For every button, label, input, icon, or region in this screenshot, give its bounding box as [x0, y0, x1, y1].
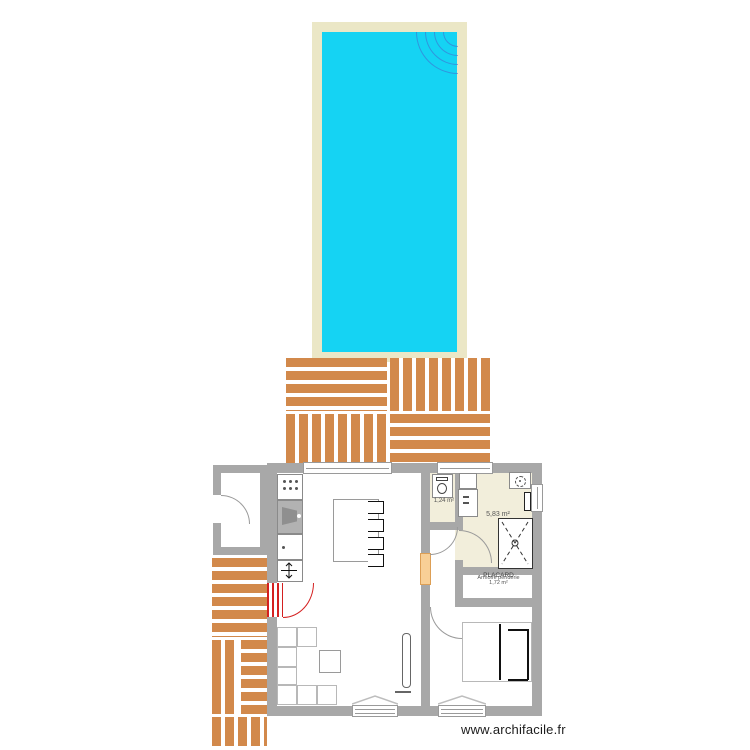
- kitchen-counter[interactable]: [277, 534, 303, 560]
- deck-tile[interactable]: [390, 414, 490, 466]
- wall-middle-vertical[interactable]: [421, 473, 430, 706]
- window[interactable]: [531, 484, 543, 512]
- chair[interactable]: [368, 501, 384, 514]
- chair[interactable]: [368, 537, 384, 550]
- wall-bottom[interactable]: [267, 706, 542, 716]
- deck-tile[interactable]: [212, 558, 267, 637]
- coffee-table[interactable]: [319, 650, 341, 673]
- wc-area-label: 1,24 m²: [427, 498, 461, 505]
- deck-tile[interactable]: [212, 717, 267, 746]
- sofa-module[interactable]: [277, 685, 297, 705]
- entry-door[interactable]: [267, 583, 283, 617]
- window[interactable]: [303, 462, 392, 474]
- toilet-icon: [436, 477, 448, 481]
- shower[interactable]: [498, 518, 533, 569]
- sink-bowl-icon: [282, 507, 297, 525]
- window[interactable]: [438, 705, 486, 717]
- window[interactable]: [352, 705, 398, 717]
- washing-machine[interactable]: [459, 473, 477, 489]
- bed-divider: [499, 624, 501, 680]
- window-chevron: [352, 693, 398, 705]
- pool[interactable]: [312, 22, 467, 362]
- wall-bedroom-top[interactable]: [460, 598, 542, 607]
- sofa-module[interactable]: [277, 667, 297, 685]
- open-passage[interactable]: [420, 553, 431, 585]
- chair[interactable]: [368, 554, 384, 567]
- shower-icon: [499, 519, 531, 567]
- deck-tile[interactable]: [241, 640, 267, 714]
- vent-icon: [278, 561, 301, 580]
- watermark: www.archifacile.fr: [461, 722, 566, 737]
- deck-tile[interactable]: [390, 358, 490, 411]
- bed-headboard: [508, 679, 528, 681]
- sofa-module[interactable]: [277, 627, 297, 647]
- kitchen-sink[interactable]: [277, 500, 303, 534]
- placard-labels: PLACARD Armoire penderie 1,72 m²: [455, 573, 542, 586]
- kitchen-hob[interactable]: [277, 474, 303, 500]
- bathroom-area-label: 5,83 m²: [478, 511, 518, 518]
- ceiling-fan[interactable]: [509, 472, 531, 489]
- bed[interactable]: [462, 622, 532, 682]
- radiator[interactable]: [402, 633, 411, 688]
- bathroom-radiator[interactable]: [524, 492, 531, 511]
- bed-headboard: [508, 629, 528, 631]
- washbasin[interactable]: [458, 489, 478, 517]
- annex-door-gap: [213, 495, 221, 523]
- sofa-module[interactable]: [317, 685, 337, 705]
- radiator-mark: [395, 691, 411, 693]
- deck-tile[interactable]: [286, 414, 387, 466]
- placard-area-label: 1,72 m²: [455, 580, 542, 586]
- deck-tile[interactable]: [286, 358, 387, 411]
- toilet-bowl-icon: [437, 483, 447, 494]
- sofa-module[interactable]: [297, 627, 317, 647]
- chair[interactable]: [368, 519, 384, 532]
- deck-tile[interactable]: [212, 640, 238, 714]
- sofa-module[interactable]: [277, 647, 297, 667]
- kitchen-vent[interactable]: [277, 560, 303, 582]
- window-chevron: [438, 693, 486, 705]
- bed-headboard: [527, 629, 529, 680]
- sofa-module[interactable]: [297, 685, 317, 705]
- toilet[interactable]: [432, 474, 453, 498]
- pool-water: [322, 32, 457, 352]
- floorplan-canvas: 1,24 m² 5,83 m² PLACARD Armoire penderie…: [0, 0, 750, 750]
